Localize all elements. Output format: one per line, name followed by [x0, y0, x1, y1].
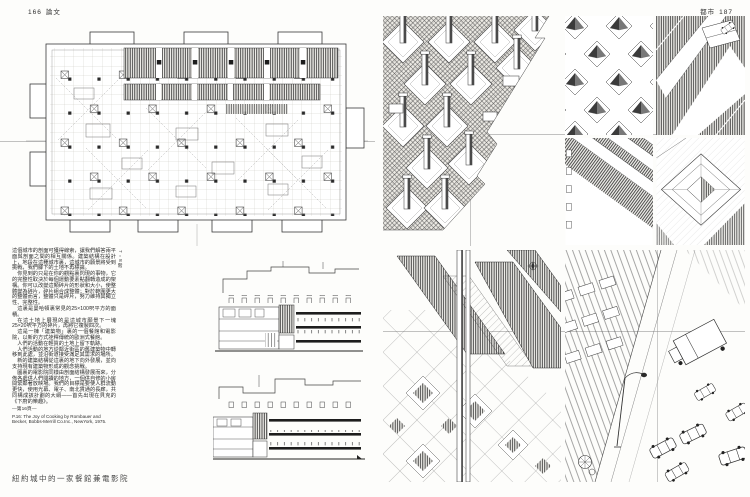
- floor-plan-drawing: [26, 28, 368, 246]
- right-page-header: 都市187: [700, 6, 737, 16]
- right-page-number: 187: [719, 9, 733, 16]
- truck-glyph: [665, 319, 729, 373]
- paragraph: 你見到的只是在你的觀點裏閃現的事物，它的完整性取決於每個運動要素點翻轉造成的架構…: [12, 272, 116, 307]
- figure-title: 紐約城中的一家餐館兼電影院: [12, 473, 129, 484]
- axon-panel-street-corner: [656, 16, 745, 135]
- caption-line-2: Becker, Bobbs-Merrill Co.Inc., NewYork, …: [12, 419, 106, 424]
- section-drawings: [213, 257, 365, 463]
- caption-line-1: P.16: The Joy of Cooking by Rombauer and: [12, 414, 101, 419]
- axon-panel-pyramids: [565, 16, 653, 135]
- axon-city-fill: [383, 16, 561, 246]
- left-page-number: 166: [28, 9, 42, 16]
- section-upper: [215, 261, 363, 351]
- car-glyph: [678, 422, 708, 447]
- right-section-label: 都市: [700, 9, 715, 16]
- axon-panel-slabs-lattice: [383, 250, 561, 482]
- axon-panel-roof-bands: [565, 138, 653, 245]
- figure-caption-en: P.16: The Joy of Cooking by Rombauer and…: [12, 414, 116, 425]
- axon-panel-street-cars: [565, 250, 745, 482]
- car-glyph: [663, 460, 690, 482]
- paragraph: 這個城市的剖面可獲得線索，讓我們解答兩平面與剖面之間的相互關係。建築結構在設計上…: [12, 249, 116, 272]
- car-glyph: [648, 435, 678, 460]
- paragraph: 圖裏的電影院同樣由剖面結構發展而來，分佈各處供人們閱讀的地方，一個供自修的小房間…: [12, 371, 116, 406]
- article-text-column: 這個城市的剖面可獲得線索，讓我們解答兩平面與剖面之間的相互關係。建築結構在設計上…: [12, 249, 116, 425]
- car-glyph: [693, 382, 717, 403]
- paragraph: 新的建築結構從這裏的地下向外發展，並向支持現有建築物形成的觀念挑戰。: [12, 359, 116, 371]
- left-page-header: 166論文: [28, 6, 65, 16]
- car-glyph: [718, 444, 745, 467]
- car-glyph: [724, 401, 745, 423]
- paragraph: 這是一棟「建築物」裏的一個餐館和電影院，以新的方式詮釋傳統的歐洲式餐館。: [12, 330, 116, 342]
- axon-panel-city-columns: [383, 16, 561, 246]
- section-lower: [213, 375, 365, 459]
- plan-floor-label: 7・8階: [117, 250, 123, 268]
- page-ref-note: —第16頁—: [12, 407, 116, 413]
- axon-panel-courtyard: [656, 138, 745, 245]
- left-section-label: 論文: [46, 9, 61, 16]
- paragraph: 這裏是曼哈頓裏常見的25×100呎平方的面積。: [12, 307, 116, 319]
